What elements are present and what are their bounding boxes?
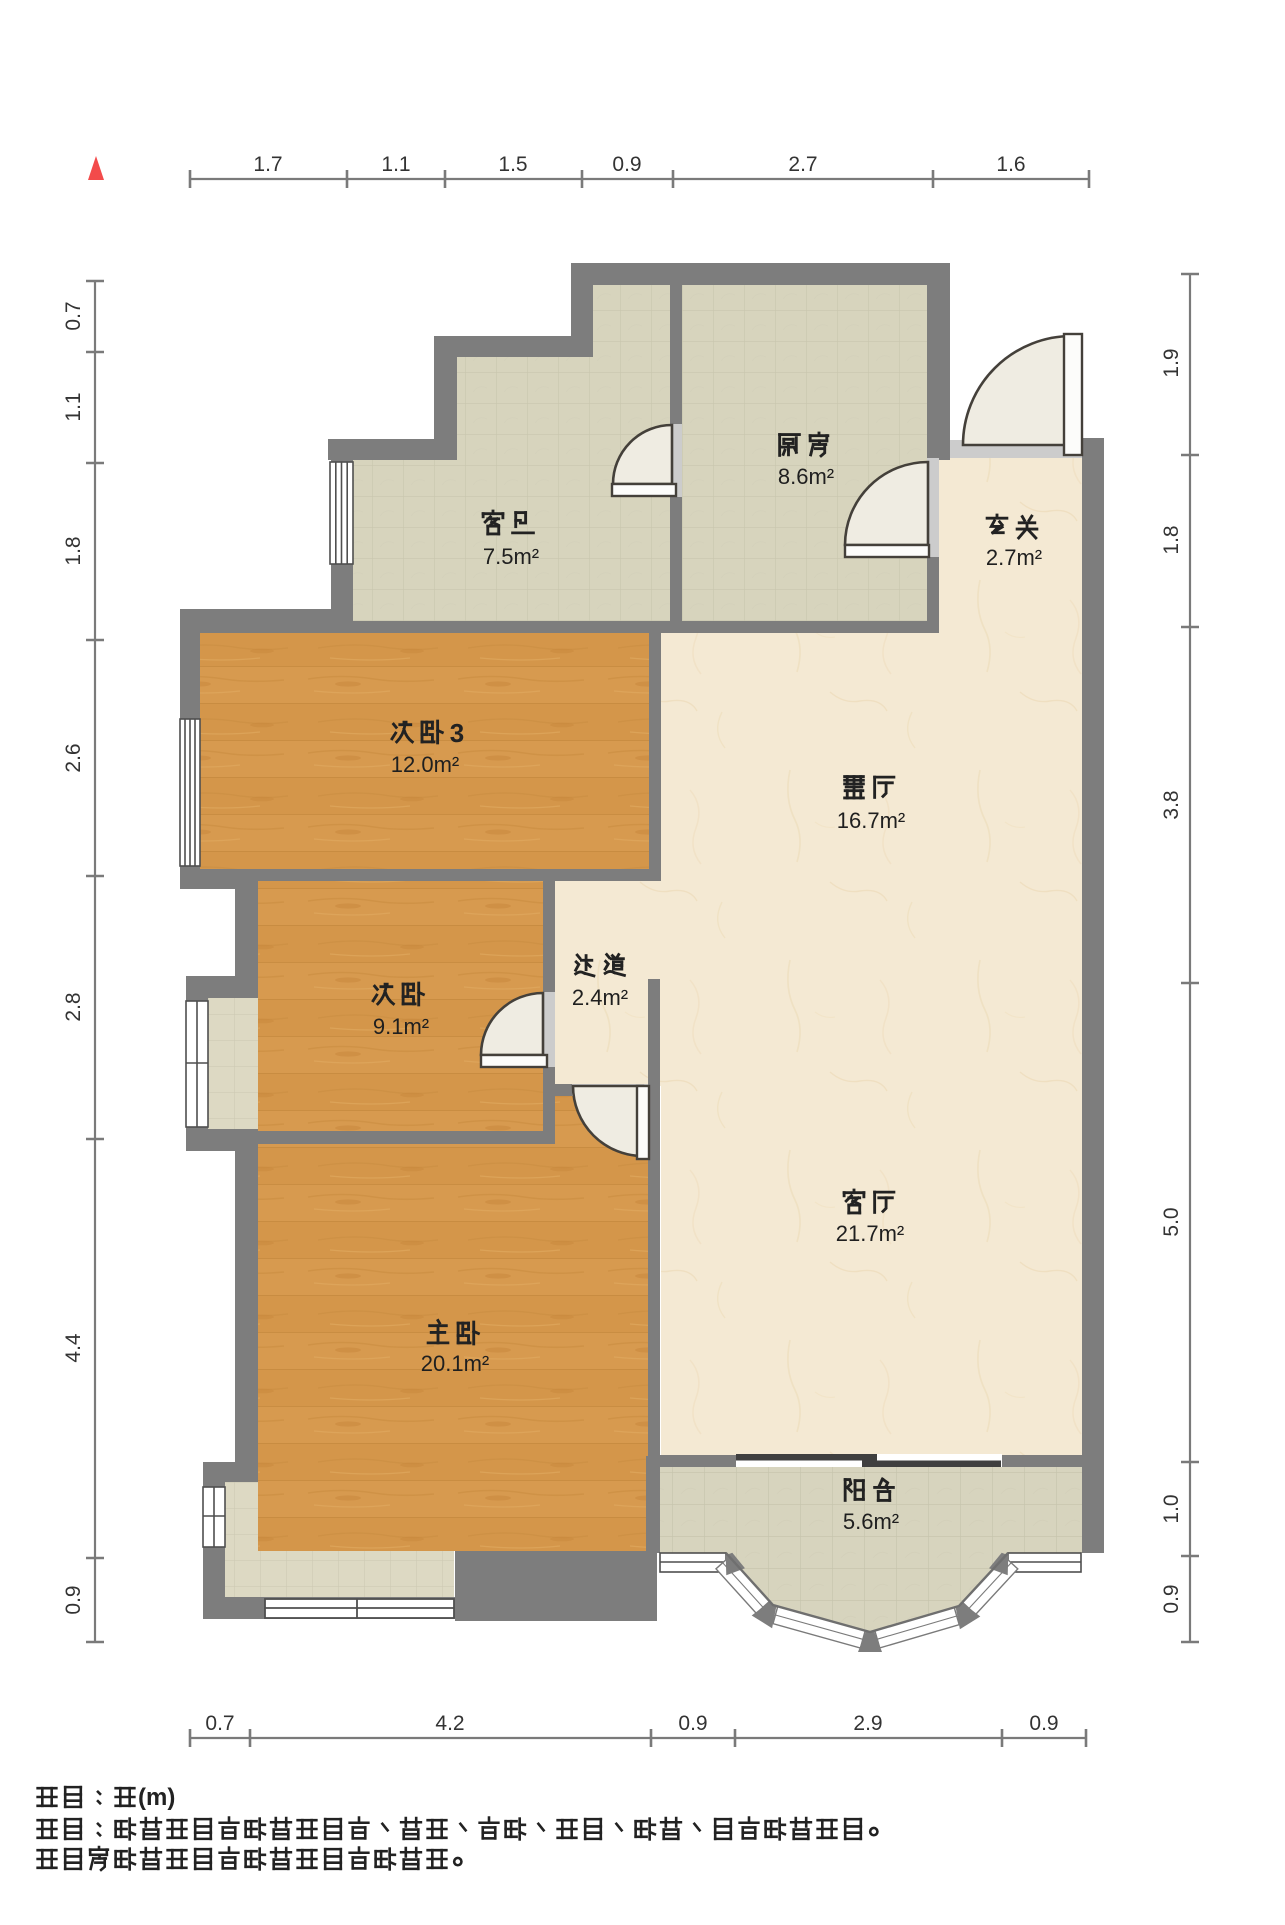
svg-text:2.7m²: 2.7m² [986, 545, 1042, 570]
svg-text:1.8: 1.8 [1160, 525, 1183, 554]
svg-text:3: 3 [450, 718, 464, 748]
svg-text:16.7m²: 16.7m² [837, 808, 905, 833]
svg-text:21.7m²: 21.7m² [836, 1221, 904, 1246]
svg-text:1.5: 1.5 [498, 153, 527, 176]
svg-text:20.1m²: 20.1m² [421, 1351, 489, 1376]
svg-text:(m): (m) [138, 1784, 175, 1811]
svg-text:2.7: 2.7 [788, 153, 817, 176]
svg-text:3.8: 3.8 [1160, 790, 1183, 819]
svg-text:0.7: 0.7 [205, 1712, 234, 1735]
svg-text:1.9: 1.9 [1160, 348, 1183, 377]
svg-text:0.9: 0.9 [1029, 1712, 1058, 1735]
svg-text:5.6m²: 5.6m² [843, 1509, 899, 1534]
svg-text:12.0m²: 12.0m² [391, 752, 459, 777]
svg-text:0.7: 0.7 [62, 301, 85, 330]
svg-text:1.0: 1.0 [1160, 1494, 1183, 1523]
svg-text:2.9: 2.9 [853, 1712, 882, 1735]
svg-text:1.7: 1.7 [253, 153, 282, 176]
svg-text:0.9: 0.9 [612, 153, 641, 176]
svg-text:7.5m²: 7.5m² [483, 544, 539, 569]
svg-text:2.6: 2.6 [62, 743, 85, 772]
svg-text:9.1m²: 9.1m² [373, 1014, 429, 1039]
svg-text:1.8: 1.8 [62, 536, 85, 565]
svg-text:0.9: 0.9 [62, 1585, 85, 1614]
svg-text:2.8: 2.8 [62, 992, 85, 1021]
svg-text:0.9: 0.9 [678, 1712, 707, 1735]
svg-text:4.4: 4.4 [62, 1333, 85, 1363]
svg-text:1.1: 1.1 [381, 153, 410, 176]
svg-text:2.4m²: 2.4m² [572, 985, 628, 1010]
svg-text:8.6m²: 8.6m² [778, 464, 834, 489]
svg-text:5.0: 5.0 [1160, 1207, 1183, 1236]
svg-text:1.6: 1.6 [996, 153, 1025, 176]
svg-text:4.2: 4.2 [435, 1712, 464, 1735]
svg-text:0.9: 0.9 [1160, 1584, 1183, 1613]
svg-text:1.1: 1.1 [62, 392, 85, 421]
